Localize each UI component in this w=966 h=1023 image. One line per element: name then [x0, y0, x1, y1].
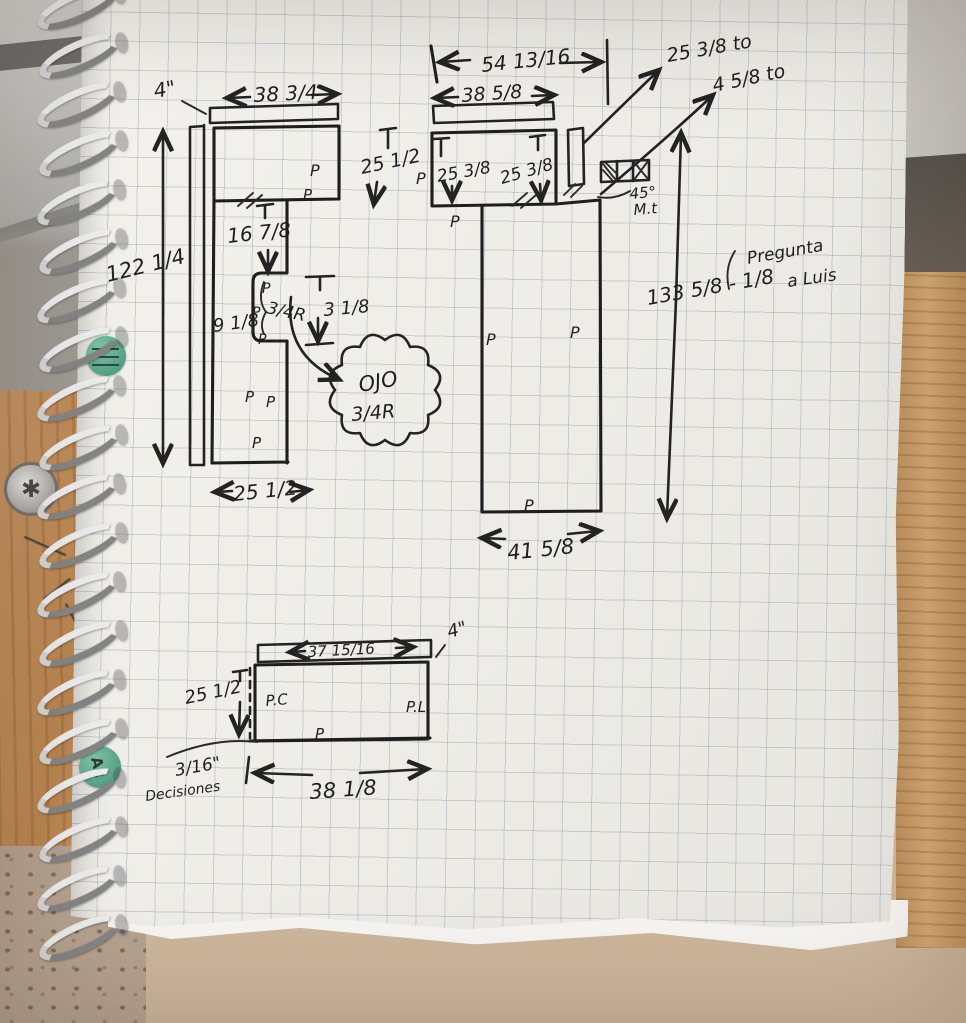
spiral-loop — [32, 171, 125, 234]
spiral-loop — [32, 465, 125, 528]
spiral-loop — [34, 416, 127, 479]
spiral-loop — [34, 710, 127, 773]
spiral-loop — [34, 612, 127, 675]
wood-board-right — [896, 272, 966, 948]
graph-paper-page — [70, 0, 908, 950]
spiral-loop — [34, 906, 127, 969]
spiral-loop — [32, 367, 125, 430]
spiral-loop — [32, 857, 125, 920]
spiral-loop — [34, 24, 127, 87]
spiral-loop — [34, 808, 127, 871]
spiral-binding — [34, 0, 154, 1002]
spiral-loop — [32, 73, 125, 136]
spiral-loop — [32, 759, 125, 822]
spiral-loop — [32, 269, 125, 332]
spiral-loop — [32, 661, 125, 724]
spiral-loop — [32, 563, 125, 626]
spiral-loop — [34, 318, 127, 381]
spiral-loop — [34, 220, 127, 283]
spiral-loop — [34, 514, 127, 577]
spiral-loop — [34, 122, 127, 185]
notebook-sketch-photo: ✱ Ac 38 3/4 4" P P — [0, 0, 966, 1023]
